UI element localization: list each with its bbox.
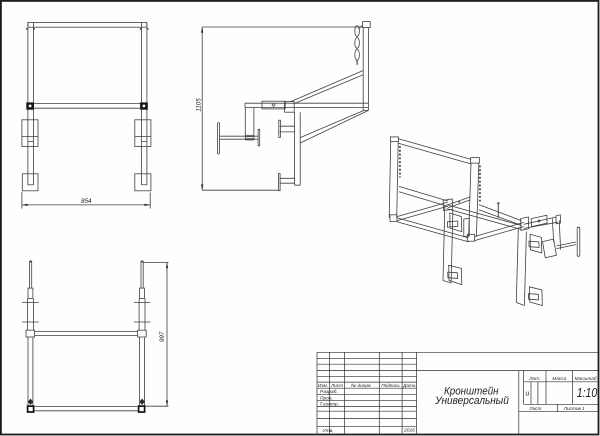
svg-text:854: 854 bbox=[81, 198, 92, 205]
svg-text:Утв.: Утв. bbox=[323, 428, 334, 434]
svg-text:№ докум.: № докум. bbox=[351, 383, 372, 388]
svg-text:1105: 1105 bbox=[195, 98, 202, 112]
svg-text:Подпись: Подпись bbox=[381, 383, 400, 388]
svg-text:Листов 1: Листов 1 bbox=[563, 406, 585, 411]
svg-text:Универсальный: Универсальный bbox=[434, 395, 509, 407]
svg-text:Лист: Лист bbox=[528, 406, 541, 411]
svg-text:Т.контр.: Т.контр. bbox=[319, 401, 339, 407]
svg-text:Пров.: Пров. bbox=[320, 395, 333, 401]
svg-text:Лист: Лист bbox=[330, 383, 343, 388]
svg-text:и: и bbox=[525, 391, 529, 398]
svg-text:Дата: Дата bbox=[402, 383, 416, 388]
svg-text:Лит.: Лит. bbox=[528, 376, 540, 381]
svg-text:2016: 2016 bbox=[403, 428, 415, 434]
svg-text:Разраб.: Разраб. bbox=[320, 389, 338, 395]
svg-text:Изм.: Изм. bbox=[318, 383, 328, 388]
svg-text:997: 997 bbox=[159, 331, 166, 342]
svg-text:1:10: 1:10 bbox=[577, 386, 598, 400]
svg-text:Масштаб: Масштаб bbox=[575, 376, 597, 381]
svg-text:Масса: Масса bbox=[552, 376, 566, 381]
